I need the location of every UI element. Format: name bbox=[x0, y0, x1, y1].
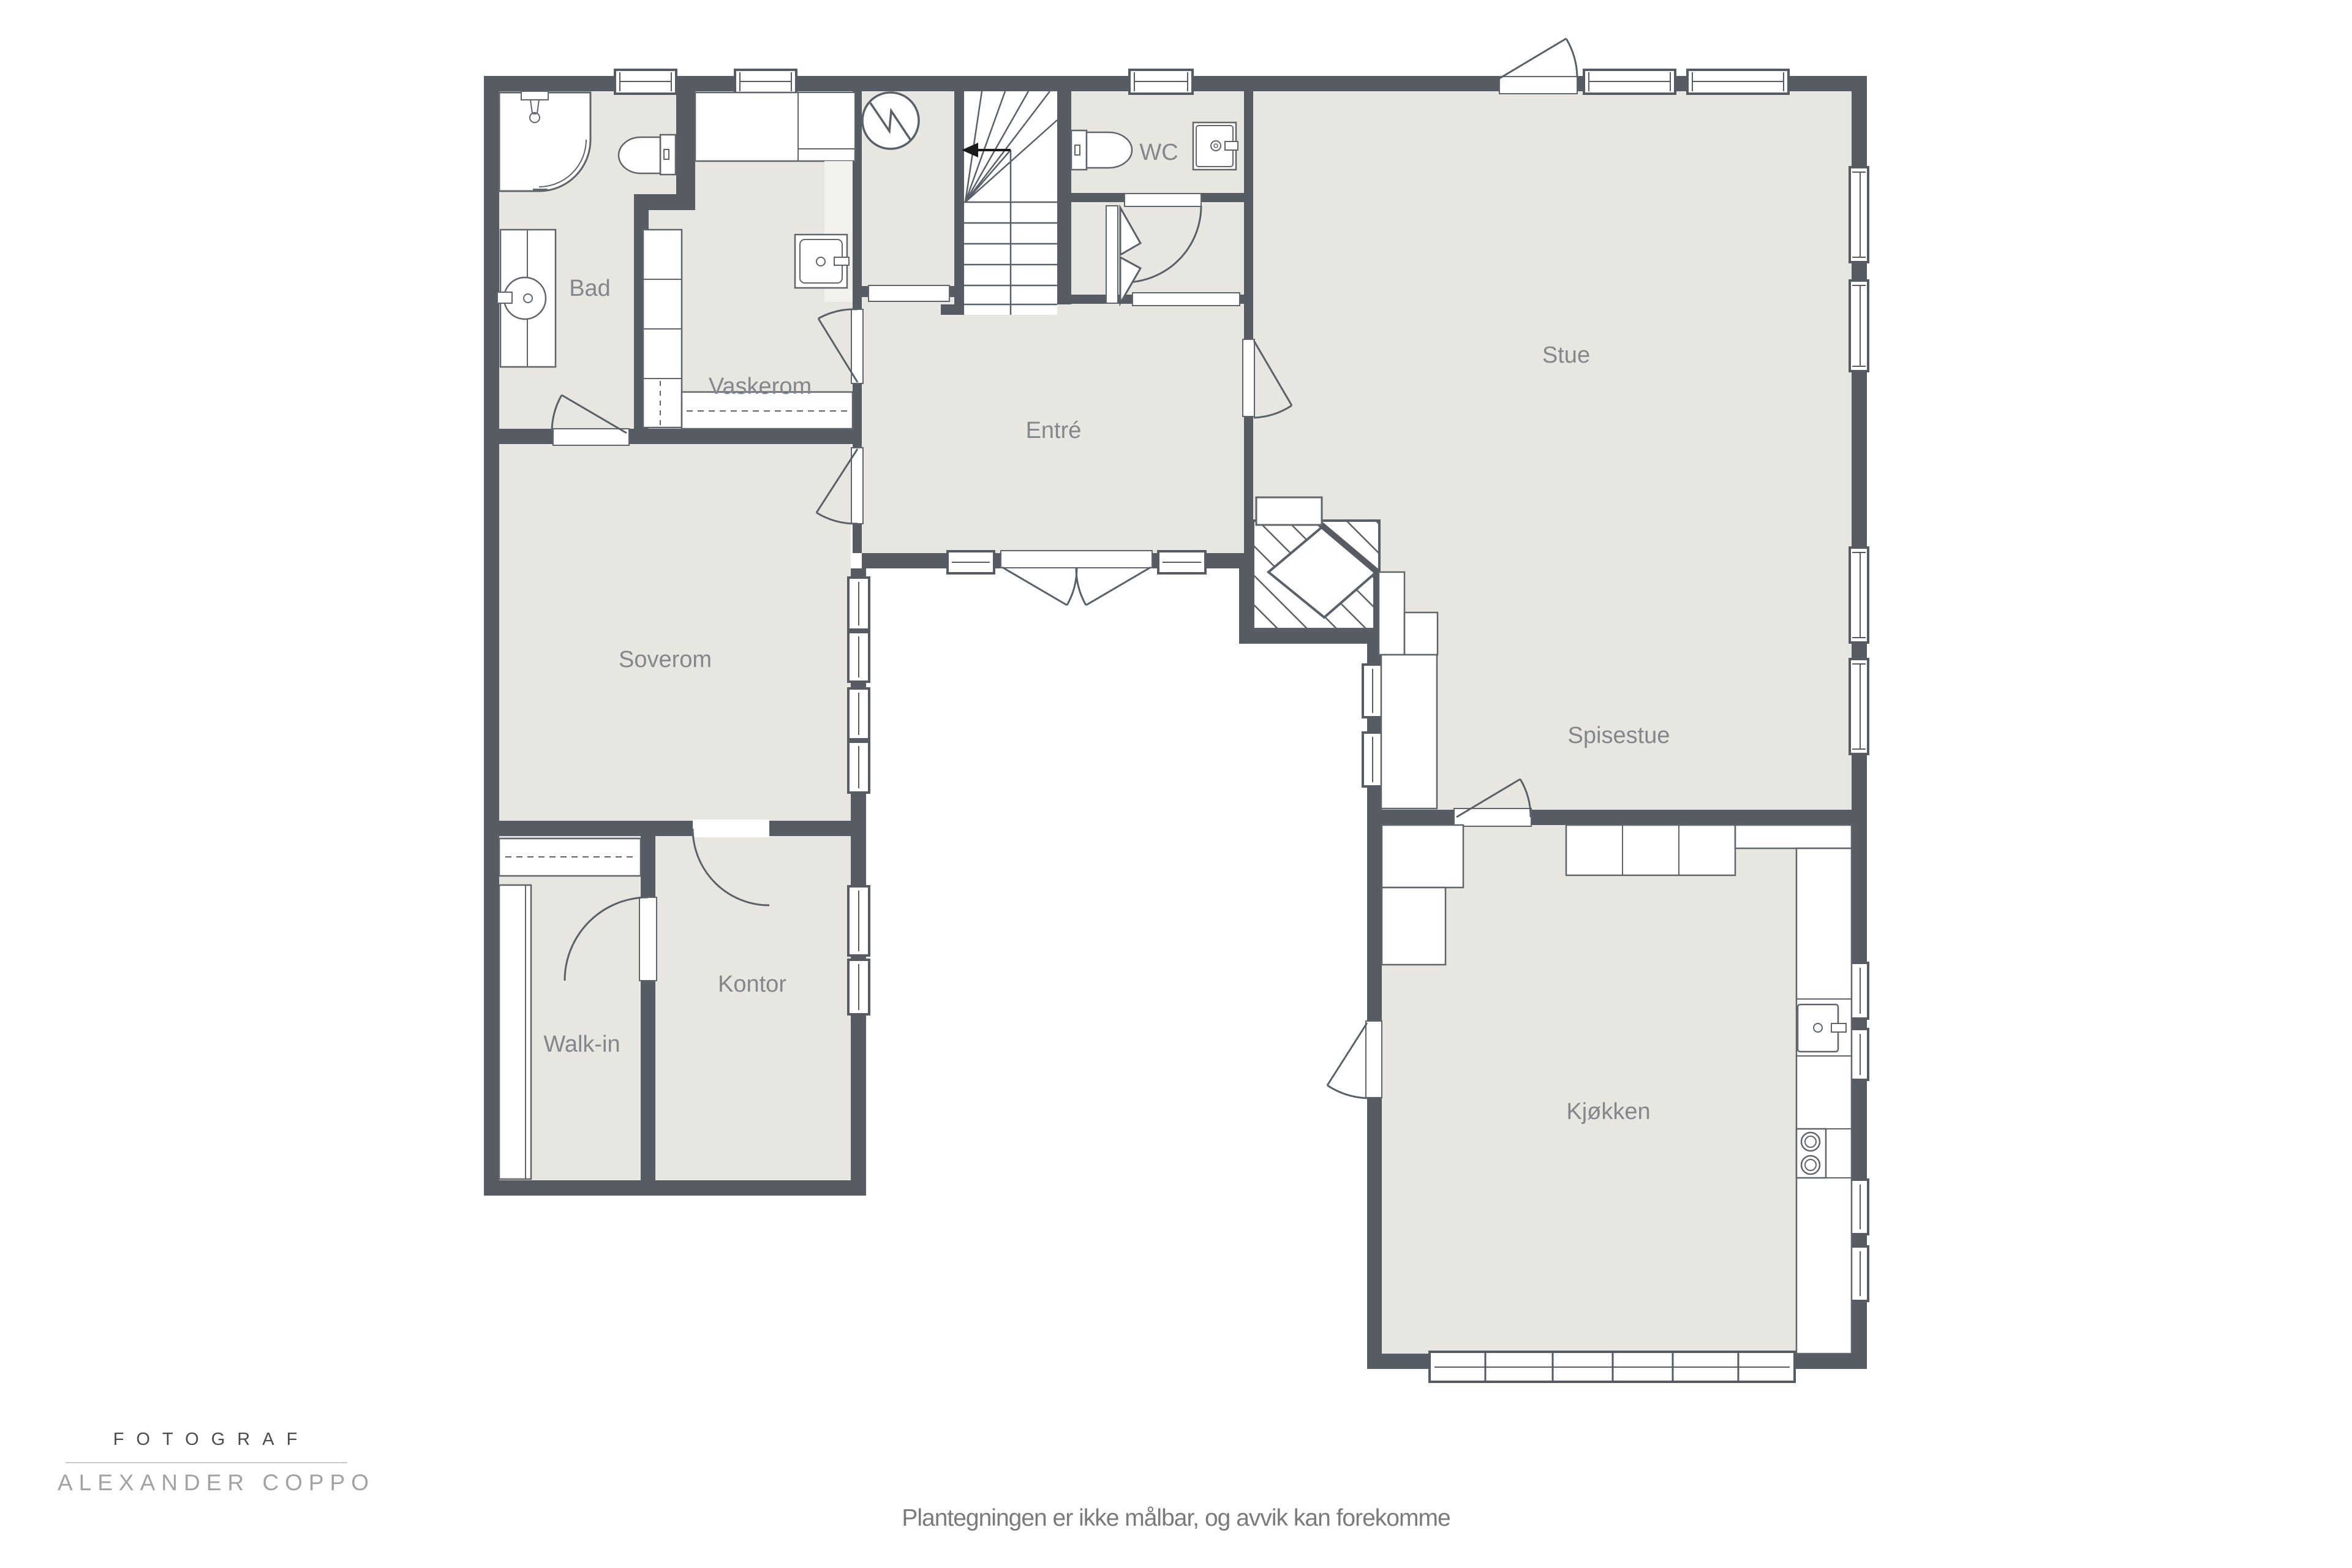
svg-text:ALEXANDER COPPO: ALEXANDER COPPO bbox=[58, 1470, 375, 1495]
svg-text:Kjøkken: Kjøkken bbox=[1566, 1099, 1650, 1125]
svg-text:Stue: Stue bbox=[1542, 342, 1590, 368]
svg-text:Entré: Entré bbox=[1026, 418, 1082, 443]
svg-text:WC: WC bbox=[1139, 140, 1178, 165]
svg-text:Walk-in: Walk-in bbox=[543, 1031, 620, 1057]
svg-text:Vaskerom: Vaskerom bbox=[709, 374, 812, 399]
svg-text:FOTOGRAF: FOTOGRAF bbox=[113, 1430, 310, 1449]
svg-text:Kontor: Kontor bbox=[718, 971, 786, 997]
svg-text:Spisestue: Spisestue bbox=[1568, 723, 1670, 748]
svg-text:Soverom: Soverom bbox=[619, 647, 712, 673]
svg-text:Bad: Bad bbox=[569, 276, 611, 301]
svg-text:Plantegningen er ikke målbar,: Plantegningen er ikke målbar, og avvik k… bbox=[902, 1505, 1450, 1531]
